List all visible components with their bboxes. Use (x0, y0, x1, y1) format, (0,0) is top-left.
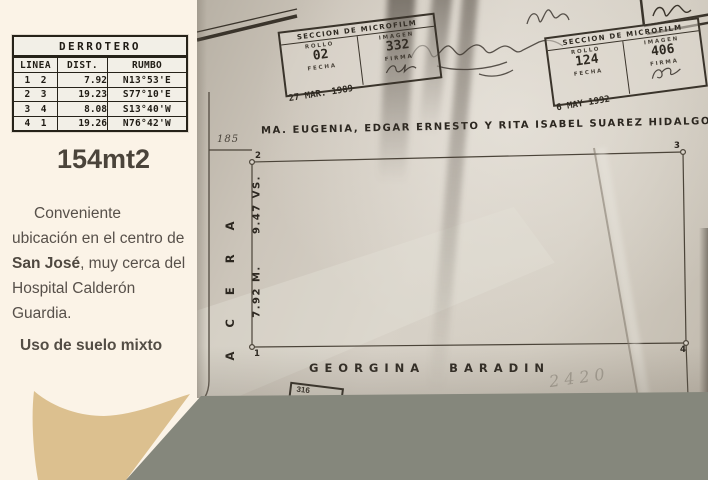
table-row: 23 19.23 S77°10'E (14, 87, 186, 102)
survey-plan-photo: MA. EUGENIA, EDGAR ERNESTO Y RITA ISABEL… (197, 0, 708, 398)
dist-value: 7.92 (58, 73, 108, 87)
linea-from: 1 (25, 75, 31, 86)
rumbo-value: S13°40'W (108, 102, 186, 116)
corner-label-2: 2 (255, 151, 261, 161)
area-heading: 154mt2 (0, 144, 197, 175)
col-header-dist: DIST. (58, 58, 108, 72)
rumbo-value: N13°53'E (108, 73, 186, 87)
gray-bar (126, 392, 708, 480)
dist-value: 8.08 (58, 102, 108, 116)
photo-edge-shadow (197, 0, 207, 398)
linea-to: 2 (41, 75, 47, 86)
linea-to: 4 (41, 104, 47, 115)
col-header-linea: LINEA (14, 58, 58, 72)
description-text-1: Conveniente ubicación en el centro de (12, 205, 184, 247)
rumbo-value: N76°42'W (108, 117, 186, 131)
derrotero-header-row: LINEA DIST. RUMBO (14, 57, 186, 72)
corner-label-3: 3 (674, 141, 680, 151)
col-header-rumbo: RUMBO (108, 58, 186, 72)
table-row: 12 7.92 N13°53'E (14, 72, 186, 87)
linea-from: 2 (25, 89, 31, 100)
linea-from: 3 (25, 104, 31, 115)
bottom-decoration (0, 388, 708, 480)
table-row: 34 8.08 S13°40'W (14, 101, 186, 116)
dimension-label-m: 7.92 M. (252, 252, 263, 332)
derrotero-title: DERROTERO (14, 37, 186, 57)
linea-to: 1 (41, 118, 47, 129)
description-highlight: San José (12, 255, 80, 272)
dist-value: 19.26 (58, 117, 108, 131)
dist-value: 19.23 (58, 88, 108, 102)
linea-to: 3 (41, 89, 47, 100)
listing-card: DERROTERO LINEA DIST. RUMBO 12 7.92 N13°… (0, 0, 708, 480)
rumbo-value: S77°10'E (108, 88, 186, 102)
derrotero-table: DERROTERO LINEA DIST. RUMBO 12 7.92 N13°… (12, 35, 188, 132)
table-row: 41 19.26 N76°42'W (14, 116, 186, 131)
dimension-label-vs: 9.47 VS. (252, 165, 263, 245)
land-use-label: Uso de suelo mixto (20, 337, 162, 355)
listing-description: Conveniente ubicación en el centro de Sa… (12, 201, 190, 326)
linea-from: 4 (25, 118, 31, 129)
front-dimension-label: 185 (217, 134, 239, 145)
